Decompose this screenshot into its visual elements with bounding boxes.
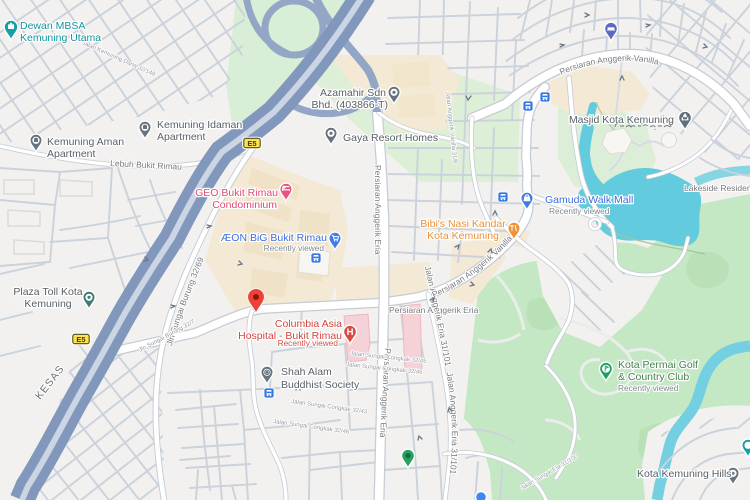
svg-text:Apartment: Apartment (157, 131, 206, 143)
svg-text:E5: E5 (247, 139, 256, 148)
svg-text:Condominium: Condominium (212, 199, 277, 211)
svg-text:Lakeside Residen: Lakeside Residen (684, 183, 750, 193)
svg-text:Buddhist Society: Buddhist Society (281, 379, 360, 391)
svg-text:Columbia Asia: Columbia Asia (275, 318, 342, 330)
svg-text:Kemuning Utama: Kemuning Utama (20, 32, 101, 44)
svg-text:Azamahir Sdn: Azamahir Sdn (320, 87, 386, 99)
svg-text:H: H (347, 327, 354, 338)
svg-text:Recently viewed: Recently viewed (278, 338, 339, 348)
svg-text:Gaya Resort Homes: Gaya Resort Homes (343, 132, 438, 144)
svg-text:Dewan MBSA: Dewan MBSA (20, 20, 85, 32)
svg-text:Bhd. (403866-T): Bhd. (403866-T) (312, 99, 388, 111)
svg-text:Kota Kemuning: Kota Kemuning (427, 230, 499, 242)
svg-text:Recently viewed: Recently viewed (549, 206, 610, 216)
svg-text:Apartment: Apartment (47, 148, 96, 160)
svg-text:Bibi's Nasi Kandar: Bibi's Nasi Kandar (420, 218, 506, 230)
svg-text:& Country Club: & Country Club (618, 371, 689, 383)
svg-text:Recently viewed: Recently viewed (264, 243, 325, 253)
svg-text:Persiaran Anggerik Eria: Persiaran Anggerik Eria (373, 165, 383, 255)
svg-text:Shah Alam: Shah Alam (281, 366, 332, 378)
svg-text:Kemuning: Kemuning (24, 298, 71, 310)
svg-text:Kemuning Aman: Kemuning Aman (47, 136, 124, 148)
svg-text:GEO Bukit Rimau: GEO Bukit Rimau (195, 187, 278, 199)
svg-text:Plaza Toll Kota: Plaza Toll Kota (13, 286, 82, 298)
svg-text:Masjid Kota Kemuning: Masjid Kota Kemuning (569, 114, 674, 126)
svg-text:Kota Kemuning Hills: Kota Kemuning Hills (637, 468, 732, 480)
svg-text:E5: E5 (76, 335, 85, 344)
svg-text:Gamuda Walk Mall: Gamuda Walk Mall (545, 194, 633, 206)
svg-text:Kota Permai Golf: Kota Permai Golf (618, 359, 698, 371)
svg-text:Recently viewed: Recently viewed (618, 383, 679, 393)
svg-text:Kemuning Idaman: Kemuning Idaman (157, 119, 242, 131)
